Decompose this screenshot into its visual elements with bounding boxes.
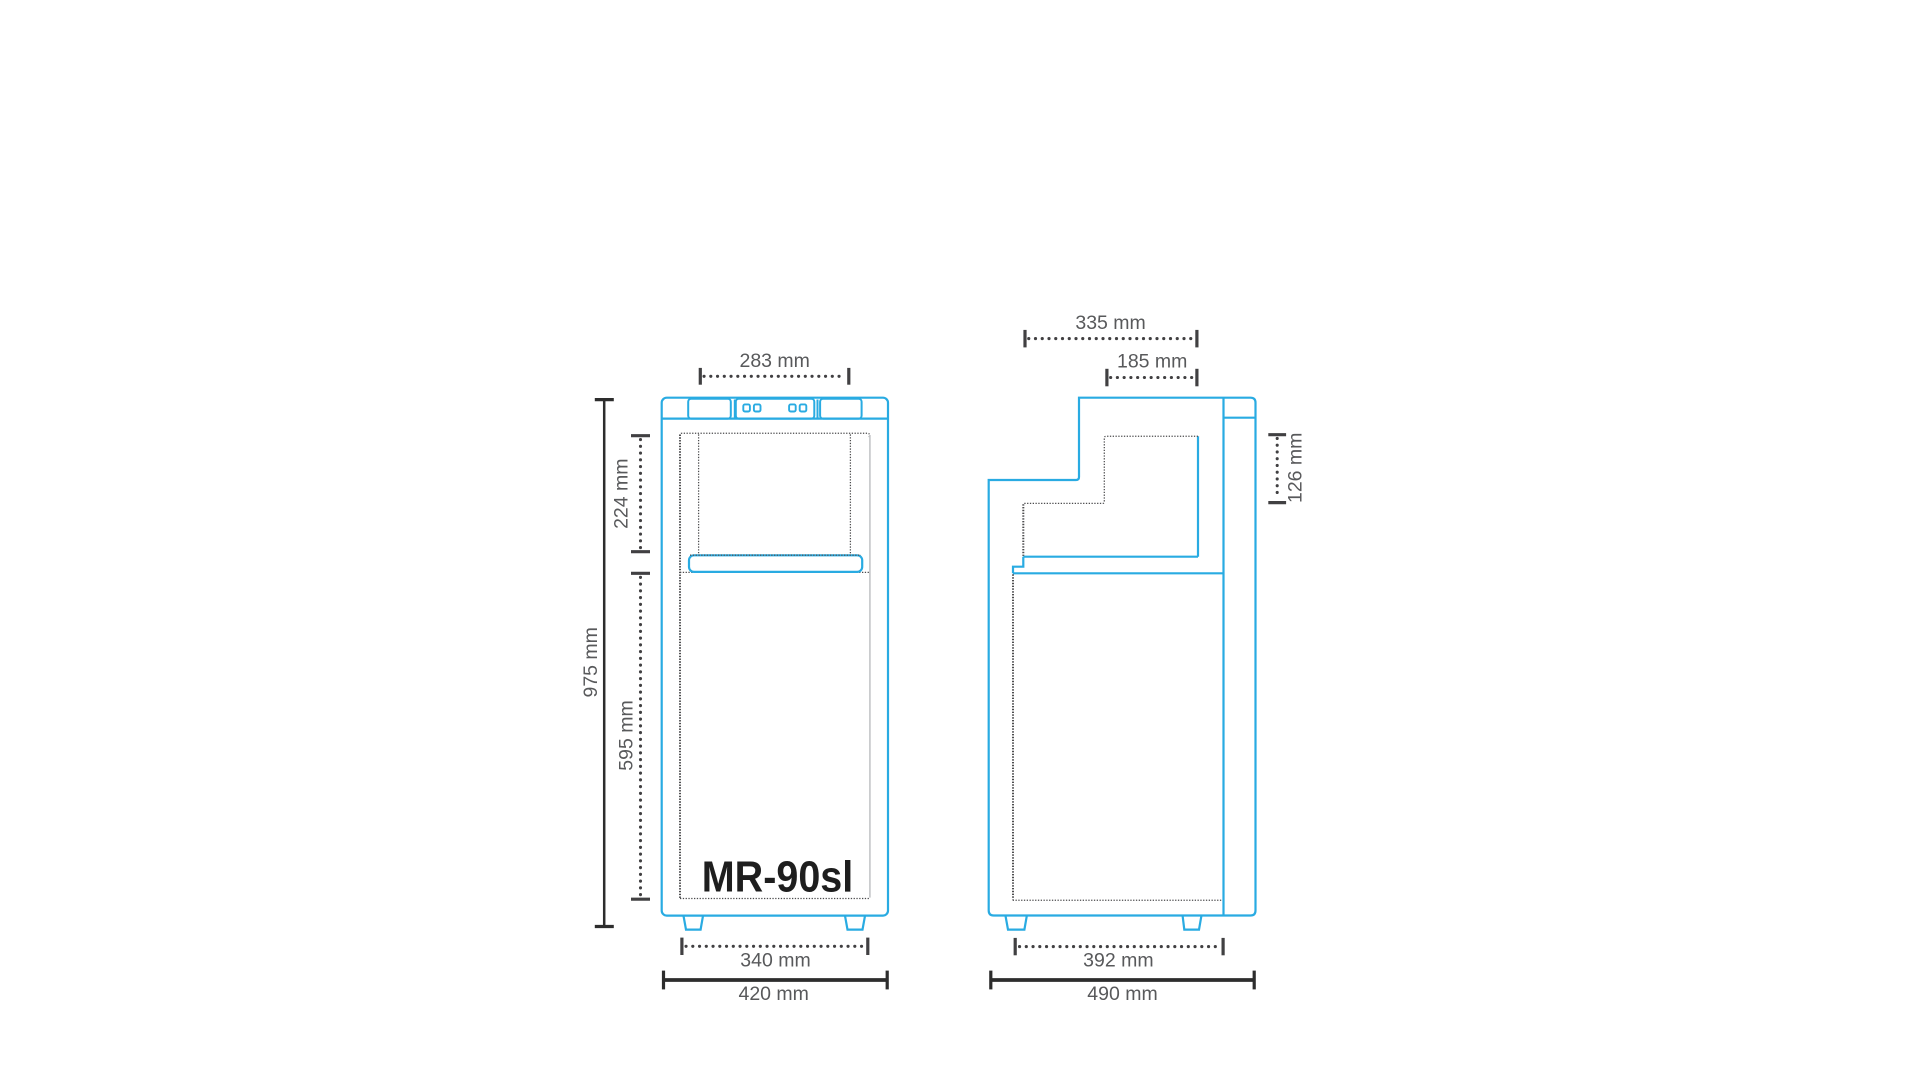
svg-text:490 mm: 490 mm — [1087, 983, 1157, 1005]
svg-text:392 mm: 392 mm — [1083, 949, 1153, 971]
svg-text:420 mm: 420 mm — [738, 983, 808, 1005]
svg-text:MR-90sl: MR-90sl — [702, 853, 854, 902]
svg-text:224 mm: 224 mm — [611, 458, 633, 528]
svg-text:185 mm: 185 mm — [1117, 351, 1187, 373]
svg-text:283 mm: 283 mm — [739, 350, 809, 372]
svg-text:340 mm: 340 mm — [740, 949, 810, 971]
svg-text:975 mm: 975 mm — [580, 627, 602, 697]
svg-text:126 mm: 126 mm — [1285, 433, 1307, 503]
svg-text:595 mm: 595 mm — [615, 700, 637, 770]
svg-text:335 mm: 335 mm — [1075, 312, 1145, 334]
